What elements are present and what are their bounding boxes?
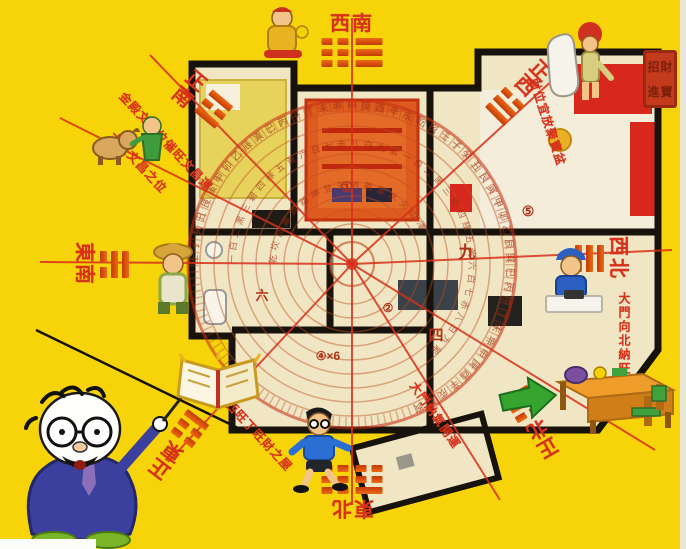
red-seal: 招財進寶 <box>643 50 677 108</box>
fengshui-floorplan-illustration: 壬子癸丑艮寅甲卯乙辰巽巳丙午丁未坤申庚酉辛戌乾亥壬子癸丑艮寅甲卯乙辰巽巳丙午丁未… <box>0 0 686 549</box>
trigram-southwest <box>322 38 383 67</box>
trigram-west <box>485 86 525 126</box>
seal-character: 進 <box>647 86 659 98</box>
trigram-south <box>194 89 233 129</box>
gold-boy-character <box>252 2 316 64</box>
direction-southeast: 東南 <box>75 242 129 286</box>
professor-character <box>2 384 182 549</box>
direction-label-south: 正南 <box>169 67 211 111</box>
sock-boy-character <box>544 18 614 114</box>
worker-character <box>540 240 614 316</box>
green-arrow-icon <box>496 374 562 426</box>
seal-character: 寶 <box>660 86 672 98</box>
seal-character: 財 <box>660 61 672 73</box>
study-desk <box>548 352 683 440</box>
seal-character: 招 <box>647 61 659 73</box>
direction-southwest: 西南 <box>322 13 383 67</box>
bottom-left-strip <box>0 539 96 549</box>
annotation-5: 大門納氣開運 <box>406 378 465 452</box>
direction-label-northeast: 東北 <box>330 499 374 519</box>
running-boy-character <box>286 404 360 494</box>
direction-label-southwest: 西南 <box>330 13 374 33</box>
trigram-southeast <box>100 251 129 278</box>
farmer-character <box>142 236 206 318</box>
right-edge-strip <box>680 0 686 549</box>
direction-label-southeast: 東南 <box>75 242 95 286</box>
dog-and-green-figure-character <box>86 104 172 168</box>
direction-south: 正南 <box>169 67 237 134</box>
golden-book <box>172 352 264 426</box>
